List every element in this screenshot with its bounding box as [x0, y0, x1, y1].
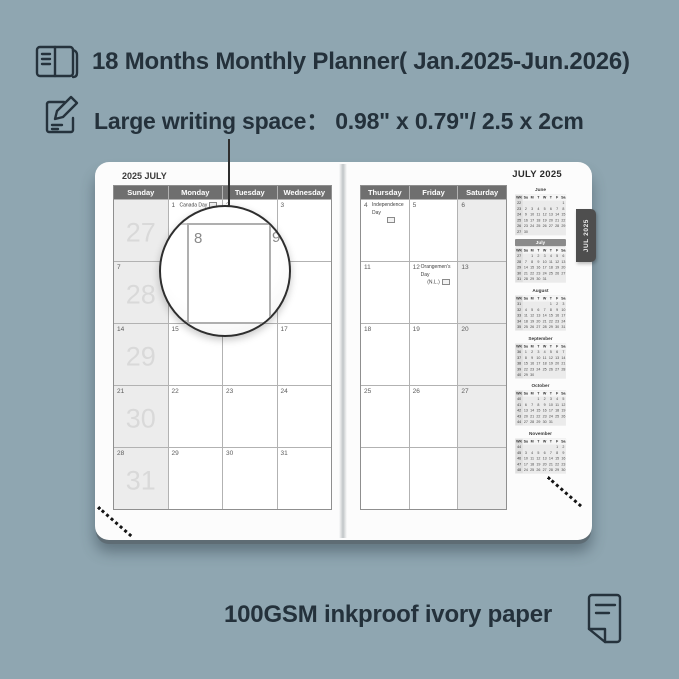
- day-cell: 2831: [114, 448, 168, 509]
- mini-month-table: WKSuMTWTFSa22123234567824910111213141525…: [515, 194, 566, 235]
- day-number: 12: [413, 264, 420, 271]
- day-number: 21: [117, 388, 124, 395]
- magnifier-circle: 8 9: [159, 205, 291, 337]
- day-number: 18: [364, 326, 371, 333]
- week-number: 27: [114, 217, 168, 248]
- day-number: 25: [364, 388, 371, 395]
- day-cell: 4Independence Day: [361, 200, 409, 261]
- mini-calendar-september: SeptemberWKSuMTWTFSa36123456737891011121…: [515, 335, 566, 379]
- mini-week-number: 27: [516, 229, 523, 235]
- day-header: Monday: [169, 186, 223, 199]
- day-number: 17: [281, 326, 288, 333]
- mini-month-title: September: [515, 335, 566, 342]
- day-number: 20: [461, 326, 468, 333]
- mini-calendar-column: JuneWKSuMTWTFSa2212323456782491011121314…: [515, 186, 566, 478]
- mini-day: 14: [560, 355, 566, 361]
- day-cell: 22: [169, 386, 223, 447]
- day-cell: 29: [169, 448, 223, 509]
- holiday-name: Independence Day: [372, 202, 404, 216]
- paper-sheet-icon: [583, 592, 625, 651]
- headline-duration: 18 Months Monthly Planner( Jan.2025-Jun.…: [92, 48, 630, 76]
- mini-day: [560, 420, 566, 426]
- day-number: 31: [281, 450, 288, 457]
- mini-calendar-body: OctoberWKSuMTWTFSa4012345416789101112421…: [515, 382, 566, 426]
- mini-calendar-august: AugustWKSuMTWTFSa31123324567891033111213…: [515, 287, 566, 331]
- flag-icon: [387, 217, 395, 223]
- headline-writing-space: Large writing space： 0.98" x 0.79"/ 2.5 …: [94, 102, 584, 136]
- day-cell: 27: [114, 200, 168, 261]
- mini-day: 7: [560, 349, 566, 355]
- day-number: 27: [461, 388, 468, 395]
- day-cell: 31: [278, 448, 332, 509]
- day-number: 19: [413, 326, 420, 333]
- holiday-line2: [372, 217, 408, 225]
- day-cell: 24: [278, 386, 332, 447]
- day-cell: 17: [278, 324, 332, 385]
- left-page-title: 2025 JULY: [122, 171, 167, 181]
- footer-paper-spec: 100GSM inkproof ivory paper: [224, 601, 552, 629]
- flag-icon: [442, 279, 450, 285]
- day-cell: 18: [361, 324, 409, 385]
- day-header: Saturday: [458, 186, 506, 199]
- mini-calendar-body: NovemberWKSuMTWTFSa441245345678946101112…: [515, 430, 566, 474]
- month-tab-label: JUL 2025: [583, 219, 590, 252]
- day-cell: 26: [410, 386, 458, 447]
- day-cell: 19: [410, 324, 458, 385]
- week-number: 30: [114, 403, 168, 434]
- mini-month-title: October: [515, 382, 566, 389]
- day-cell: [361, 448, 409, 509]
- magnified-day-number: 8: [194, 230, 202, 247]
- day-number: 22: [172, 388, 179, 395]
- week-number: 31: [114, 465, 168, 496]
- holiday-line2: (N.L.): [421, 279, 457, 287]
- mini-month-title: November: [515, 430, 566, 437]
- mini-dow-header: WK: [516, 344, 523, 350]
- day-number: 26: [413, 388, 420, 395]
- mini-month-table: WKSuMTWTFSa44124534567894610111213141516…: [515, 438, 566, 473]
- day-cell: 13: [458, 262, 506, 323]
- mini-month-title: August: [515, 287, 566, 294]
- day-number: 7: [117, 264, 121, 271]
- day-number: 24: [281, 388, 288, 395]
- mini-calendar-june: JuneWKSuMTWTFSa2212323456782491011121314…: [515, 186, 566, 235]
- mini-day: [560, 372, 566, 378]
- mini-month-title: June: [515, 186, 566, 193]
- mini-week-number: 31: [516, 277, 523, 283]
- day-number: 28: [117, 450, 124, 457]
- day-number: 15: [172, 326, 179, 333]
- day-header: Sunday: [114, 186, 168, 199]
- mini-dow-header: Sa: [560, 344, 566, 350]
- day-number: 30: [226, 450, 233, 457]
- day-cell: 2130: [114, 386, 168, 447]
- day-cell: 1429: [114, 324, 168, 385]
- note-pencil-icon: [42, 94, 80, 141]
- day-cell: 23: [223, 386, 277, 447]
- day-cell: 27: [458, 386, 506, 447]
- day-cell: [458, 448, 506, 509]
- day-cell: 12Orangemen's Day(N.L.): [410, 262, 458, 323]
- day-header: Tuesday: [223, 186, 277, 199]
- mini-week-number: 48: [516, 468, 523, 474]
- day-number: 1: [172, 202, 176, 209]
- day-cell: 6: [458, 200, 506, 261]
- day-number: 5: [413, 202, 417, 209]
- month-tab: JUL 2025: [576, 209, 596, 262]
- day-number: 3: [281, 202, 285, 209]
- mini-calendar-body: JuneWKSuMTWTFSa2212323456782491011121314…: [515, 186, 566, 235]
- mini-week-number: 35: [516, 325, 523, 331]
- mini-month-title: July: [515, 239, 566, 246]
- day-number: 13: [461, 264, 468, 271]
- mini-calendar-november: NovemberWKSuMTWTFSa441245345678946101112…: [515, 430, 566, 474]
- mini-month-table: WKSuMTWTFSa40123454167891011124213141516…: [515, 391, 566, 426]
- mini-week-number: 38: [516, 361, 523, 367]
- holiday-name: Orangemen's Day: [421, 264, 451, 278]
- mini-week-number: 36: [516, 349, 523, 355]
- day-number: 29: [172, 450, 179, 457]
- holiday-label: Independence Day: [372, 202, 408, 225]
- mini-calendar-body: JulyWKSuMTWTFSa2712345628789101112132914…: [515, 239, 566, 283]
- right-page-title: JULY 2025: [455, 169, 562, 180]
- holiday-label: Orangemen's Day(N.L.): [421, 264, 457, 287]
- day-cell: 11: [361, 262, 409, 323]
- day-cell: 20: [458, 324, 506, 385]
- mini-day: [560, 277, 566, 283]
- mini-calendar-body: AugustWKSuMTWTFSa31123324567891033111213…: [515, 287, 566, 331]
- day-cell: 30: [223, 448, 277, 509]
- mini-calendar-body: SeptemberWKSuMTWTFSa36123456737891011121…: [515, 335, 566, 379]
- mini-day: 30: [560, 468, 566, 474]
- day-number: 14: [117, 326, 124, 333]
- day-number: 4: [364, 202, 368, 209]
- mini-calendar-october: OctoberWKSuMTWTFSa4012345416789101112421…: [515, 382, 566, 426]
- day-header: Wednesday: [278, 186, 332, 199]
- planner-spread: 2025 JULY JULY 2025 SundayMondayTuesdayW…: [95, 162, 592, 540]
- mini-day: [560, 229, 566, 235]
- mini-week-number: 39: [516, 366, 523, 372]
- day-number: 6: [461, 202, 465, 209]
- mini-calendar-july: JulyWKSuMTWTFSa2712345628789101112132914…: [515, 239, 566, 283]
- mini-month-table: WKSuMTWTFSa36123456737891011121314381516…: [515, 343, 566, 378]
- day-cell: [410, 448, 458, 509]
- mini-day: 28: [560, 366, 566, 372]
- holiday-region: (N.L.): [427, 279, 440, 285]
- day-cell: 25: [361, 386, 409, 447]
- mini-week-number: 40: [516, 372, 523, 378]
- day-header: Thursday: [361, 186, 409, 199]
- day-header: Friday: [410, 186, 458, 199]
- mini-week-number: 44: [516, 420, 523, 426]
- day-cell: 5: [410, 200, 458, 261]
- day-number: 23: [226, 388, 233, 395]
- notebook-icon: [34, 42, 80, 87]
- mini-week-number: 37: [516, 355, 523, 361]
- mini-month-table: WKSuMTWTFSa27123456287891011121329141516…: [515, 248, 566, 283]
- right-month-grid: ThursdayFridaySaturday4Independence Day5…: [360, 185, 507, 510]
- mini-month-table: WKSuMTWTFSa31123324567891033111213141516…: [515, 295, 566, 330]
- day-number: 11: [364, 264, 371, 271]
- magnifier-pointer-line: [228, 139, 230, 209]
- page-spine: [339, 164, 347, 538]
- week-number: 29: [114, 341, 168, 372]
- mini-day: 31: [560, 325, 566, 331]
- magnified-day-number: 9: [272, 229, 280, 246]
- mini-day: 21: [560, 361, 566, 367]
